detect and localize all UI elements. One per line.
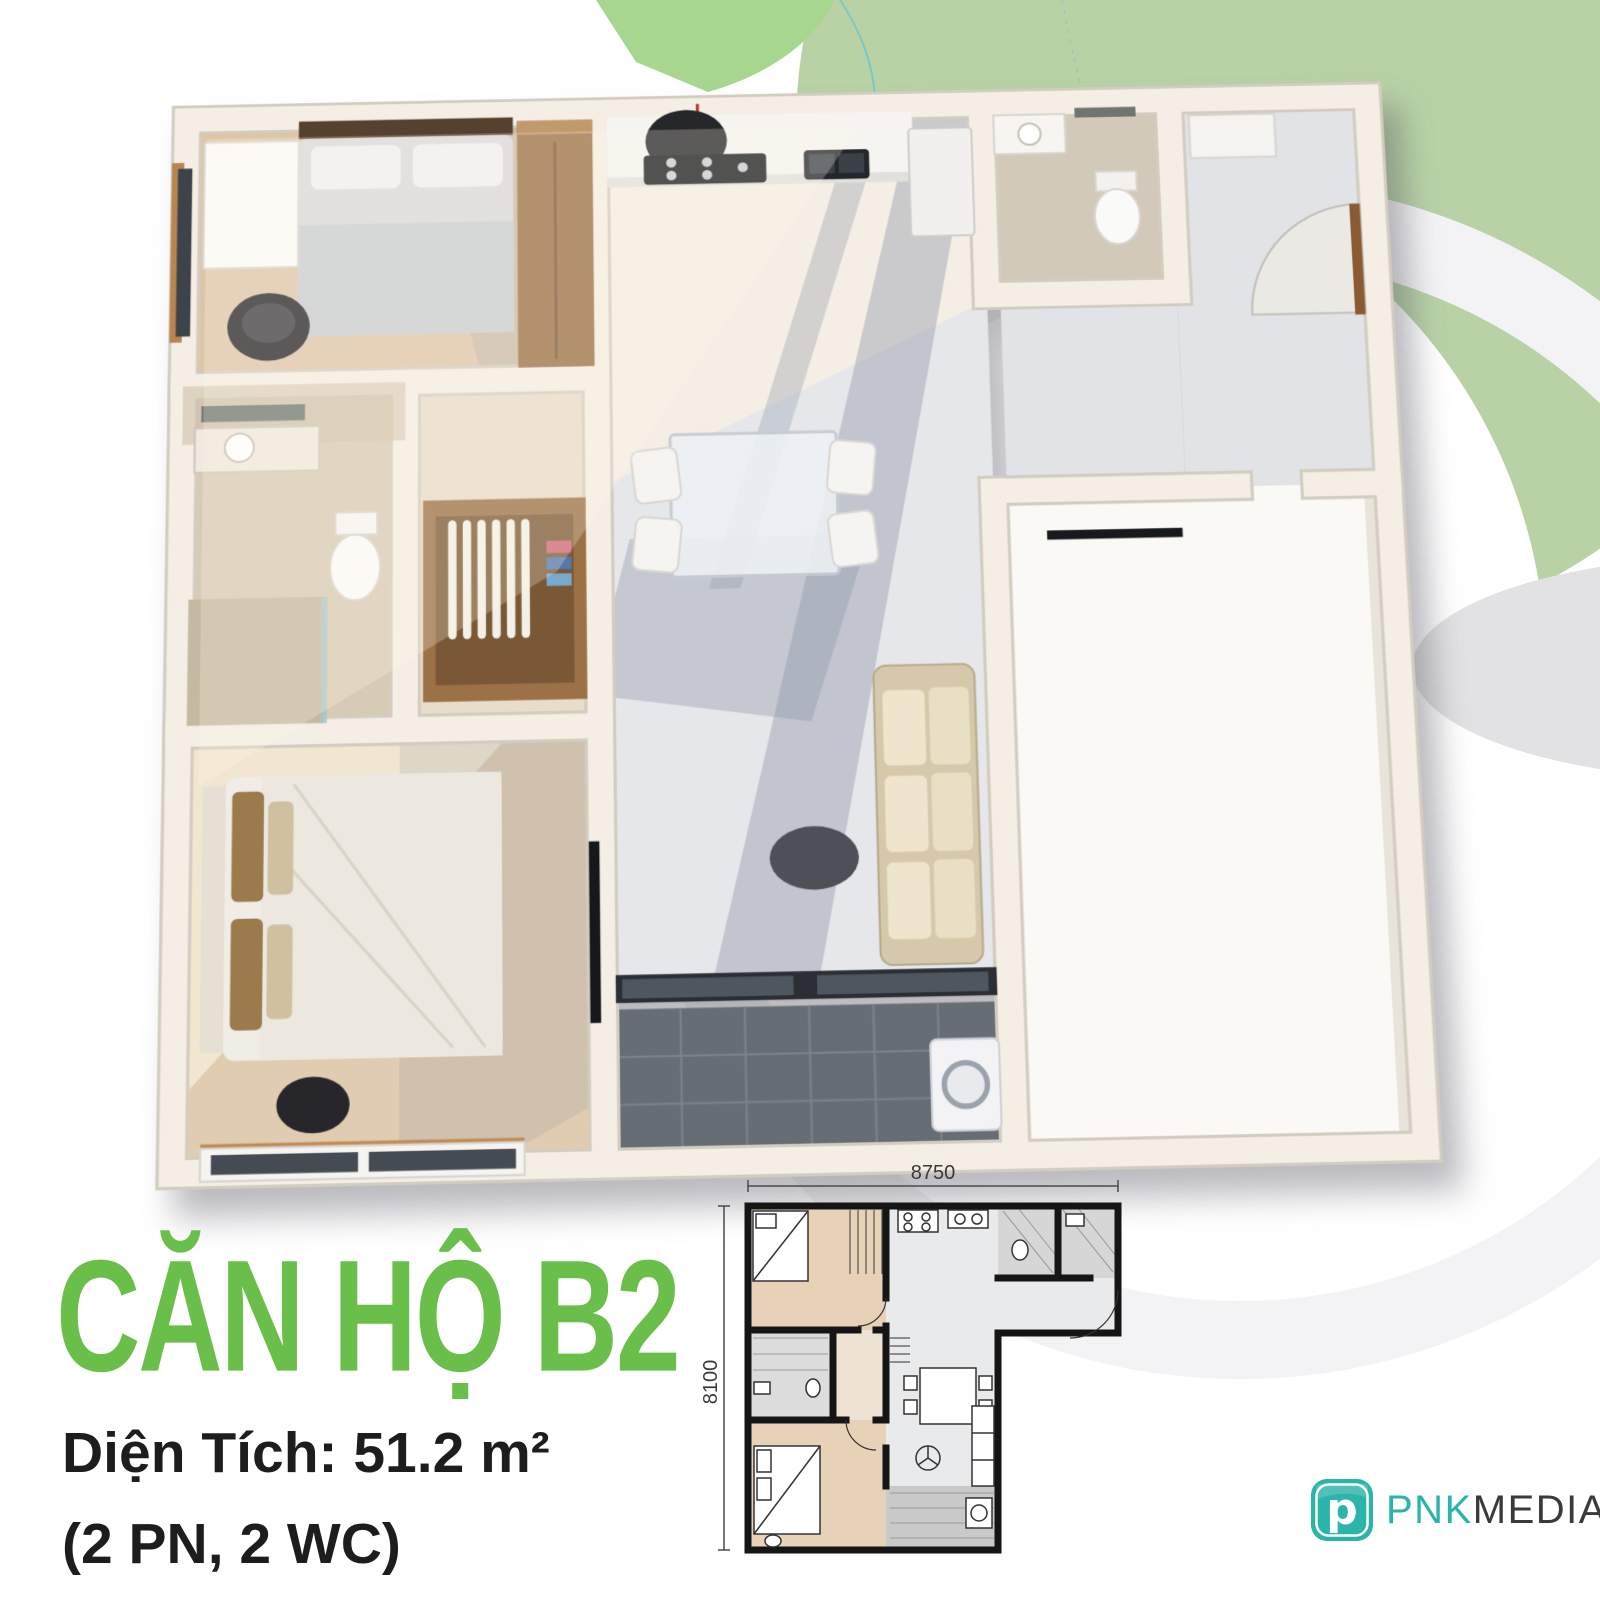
wc2-mirror <box>1074 107 1135 118</box>
logo-letter: p <box>1326 1484 1358 1535</box>
plan-stove <box>898 1210 938 1232</box>
logo-text-media: MEDIA <box>1473 1488 1600 1532</box>
dim-width-label: 8750 <box>911 1162 956 1184</box>
area-label: Diện Tích: 51.2 m² <box>62 1408 550 1499</box>
plan-washer <box>966 1498 992 1528</box>
pnkmedia-logo: p PNKMEDIA <box>1310 1478 1600 1542</box>
dining-table <box>670 431 839 577</box>
bedroom1-window <box>176 169 193 337</box>
plan-sofa <box>972 1406 994 1486</box>
floor-plan-2d: 8750 8100 <box>698 1158 1184 1604</box>
pnkmedia-logo-icon: p <box>1310 1478 1374 1542</box>
logo-text-pnk: PNK <box>1386 1488 1473 1532</box>
dim-height-label: 8100 <box>700 1360 722 1405</box>
plan-master-bed <box>754 1446 820 1547</box>
logo-wordmark: PNKMEDIA <box>1386 1488 1600 1533</box>
plan-sink <box>948 1210 988 1228</box>
apartment-specs: Diện Tích: 51.2 m² (2 PN, 2 WC) <box>62 1408 550 1590</box>
apartment-title: CĂN HỘ B2 <box>56 1236 679 1395</box>
adjacent-room-floor <box>993 483 1426 1156</box>
rooms-label: (2 PN, 2 WC) <box>62 1499 550 1590</box>
plan-toilet2 <box>1012 1240 1028 1260</box>
fridge <box>908 128 975 237</box>
apartment-3d-render <box>128 57 1472 1219</box>
hall-floor <box>1001 304 1186 490</box>
tv-panel <box>589 841 601 1023</box>
shoe-cabinet <box>1189 114 1277 159</box>
plan-basin2 <box>1066 1214 1084 1226</box>
